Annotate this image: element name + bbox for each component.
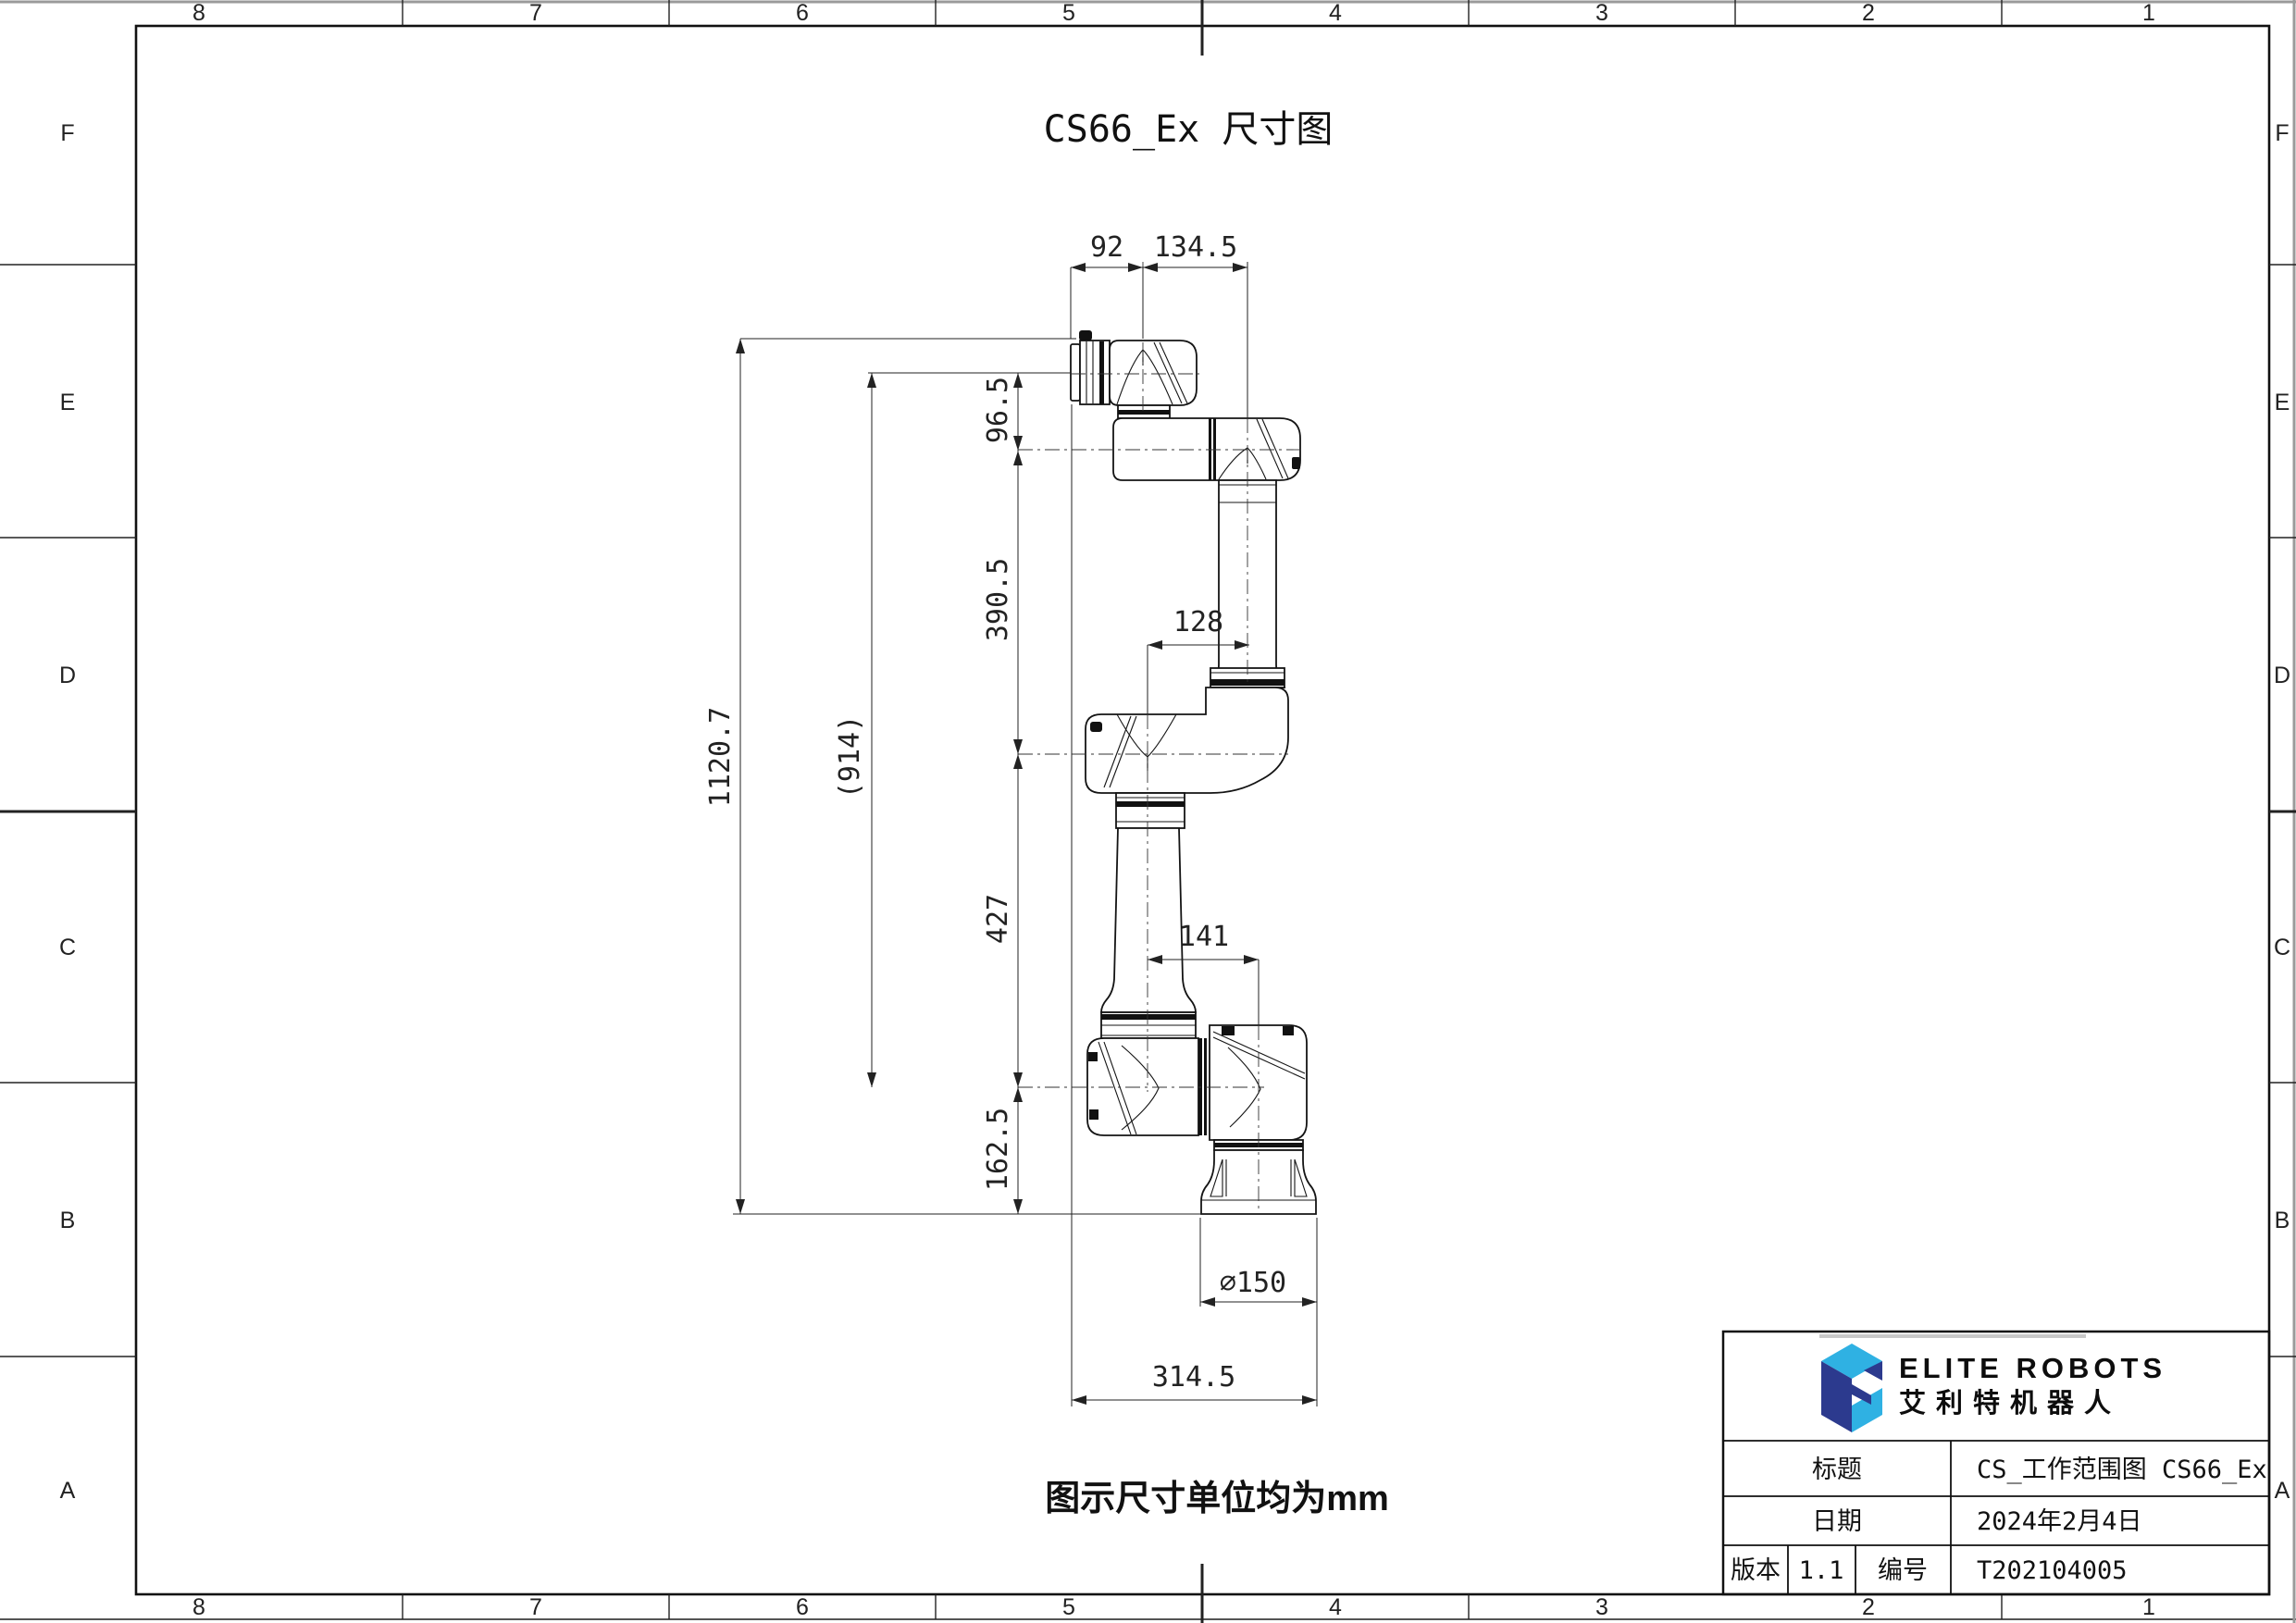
number-value: T202104005 bbox=[1977, 1556, 2128, 1585]
zone-col-label: 8 bbox=[192, 0, 205, 26]
dimension-labels: 92 134.5 1120.7 (914) 96.5 390.5 427 162… bbox=[704, 231, 1286, 1394]
zone-col-label: 4 bbox=[1329, 0, 1342, 26]
zone-col-label: 1 bbox=[2142, 1594, 2155, 1620]
zone-row-label: C bbox=[59, 935, 76, 960]
zone-row-label: B bbox=[60, 1208, 76, 1233]
wrist2-connector bbox=[1292, 457, 1300, 469]
zone-col-label: 7 bbox=[529, 1594, 542, 1620]
version-label: 版本 bbox=[1731, 1556, 1781, 1584]
zone-row-label: A bbox=[60, 1478, 76, 1504]
dim-141: 141 bbox=[1179, 921, 1229, 953]
drawing-title: CS66_Ex 尺寸图 bbox=[1044, 108, 1334, 151]
zone-row-label: A bbox=[2275, 1478, 2290, 1504]
elbow-connector bbox=[1090, 722, 1102, 732]
zone-row-label: D bbox=[59, 663, 76, 688]
title-value: CS_工作范围图 CS66_Ex bbox=[1977, 1456, 2267, 1484]
number-label: 编号 bbox=[1878, 1556, 1928, 1584]
dim-96-5: 96.5 bbox=[982, 377, 1014, 443]
date-label: 日期 bbox=[1812, 1507, 1862, 1535]
units-note: 图示尺寸单位均为mm bbox=[1045, 1480, 1389, 1518]
title-label: 标题 bbox=[1812, 1456, 1862, 1483]
date-value: 2024年2月4日 bbox=[1977, 1507, 2142, 1536]
zone-row-label: B bbox=[2275, 1208, 2290, 1233]
zone-col-label: 4 bbox=[1329, 1594, 1342, 1620]
zone-col-label: 6 bbox=[796, 1594, 809, 1620]
zone-col-label: 2 bbox=[1862, 0, 1875, 26]
dim-1120-7: 1120.7 bbox=[704, 707, 737, 807]
zone-col-label: 3 bbox=[1595, 0, 1608, 26]
dim-427: 427 bbox=[982, 894, 1014, 944]
zone-col-label: 8 bbox=[192, 1594, 205, 1620]
brand-name-cn: 艾利特机器人 bbox=[1899, 1388, 2121, 1419]
wrist2-joint bbox=[1113, 418, 1300, 480]
dim-92: 92 bbox=[1090, 231, 1123, 264]
zone-col-label: 5 bbox=[1062, 0, 1075, 26]
tool-flange bbox=[1080, 341, 1110, 404]
zone-col-label: 6 bbox=[796, 0, 809, 26]
forearm-ring-top bbox=[1116, 793, 1185, 828]
zone-row-label: D bbox=[2274, 663, 2290, 688]
elbow-joint bbox=[1086, 688, 1288, 793]
zone-col-label: 2 bbox=[1862, 1594, 1875, 1620]
dim-314-5: 314.5 bbox=[1152, 1361, 1235, 1394]
shoulder-connector bbox=[1089, 1109, 1098, 1120]
shoulder-joint bbox=[1087, 1038, 1198, 1135]
version-value: 1.1 bbox=[1799, 1556, 1844, 1585]
title-block: ELITE ROBOTS 艾利特机器人 标题 CS_工作范围图 CS66_Ex … bbox=[1723, 1332, 2269, 1594]
zone-col-label: 3 bbox=[1595, 1594, 1608, 1620]
zone-col-label: 5 bbox=[1062, 1594, 1075, 1620]
brand-name-en: ELITE ROBOTS bbox=[1899, 1352, 2166, 1384]
dim-128: 128 bbox=[1173, 606, 1223, 638]
base-connector bbox=[1283, 1026, 1294, 1035]
zone-col-label: 1 bbox=[2142, 0, 2155, 26]
drawing-sheet: 8 7 6 5 4 3 2 1 8 7 6 5 4 3 2 1 F E D C … bbox=[0, 0, 2296, 1623]
dim-914: (914) bbox=[834, 715, 866, 799]
dim-390-5: 390.5 bbox=[982, 558, 1014, 641]
dim-162-5: 162.5 bbox=[982, 1108, 1014, 1191]
zone-row-label: F bbox=[2275, 120, 2289, 146]
zone-row-label: C bbox=[2274, 935, 2290, 960]
zone-row-label: F bbox=[60, 120, 74, 146]
robot-arm-drawing bbox=[1071, 330, 1316, 1214]
zone-row-label: E bbox=[60, 390, 76, 415]
base-connector bbox=[1222, 1026, 1235, 1035]
tool-flange-lip bbox=[1071, 344, 1080, 401]
shoulder-connector bbox=[1088, 1052, 1098, 1061]
drawing-canvas: 8 7 6 5 4 3 2 1 8 7 6 5 4 3 2 1 F E D C … bbox=[0, 0, 2296, 1623]
flange-connector bbox=[1079, 330, 1092, 341]
zone-col-label: 7 bbox=[529, 0, 542, 26]
zone-row-label: E bbox=[2275, 390, 2290, 415]
dim-diameter-150: ∅150 bbox=[1220, 1267, 1286, 1299]
dim-134-5: 134.5 bbox=[1154, 231, 1237, 264]
